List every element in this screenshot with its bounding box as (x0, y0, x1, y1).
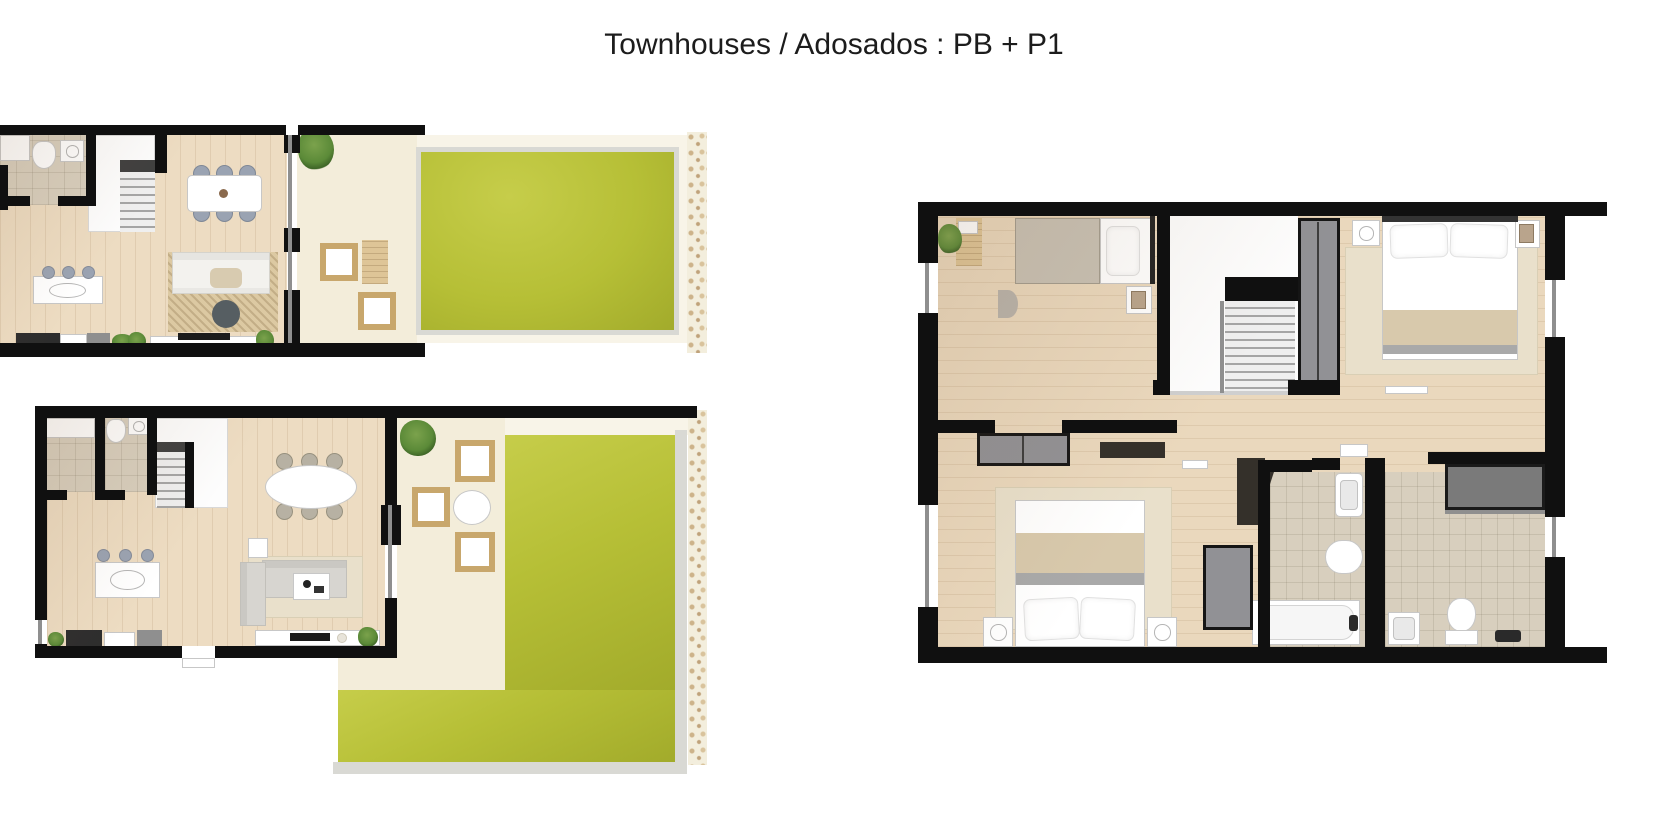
wall (35, 406, 697, 418)
shower-fixture (1495, 630, 1521, 642)
wall (1545, 337, 1565, 517)
toilet-tank (1445, 630, 1478, 645)
wall (86, 135, 96, 205)
floorplan-sheet: Townhouses / Adosados : PB + P1 (0, 0, 1668, 820)
wardrobe (1298, 218, 1340, 385)
pillow (1389, 223, 1448, 259)
table-decor (314, 586, 324, 593)
lawn (421, 152, 674, 330)
wall (0, 196, 30, 206)
window (1552, 517, 1556, 557)
kitchen-island (33, 276, 103, 304)
stair-edge (120, 160, 155, 172)
wall (1062, 420, 1177, 433)
wall (1428, 452, 1545, 464)
plant (938, 224, 962, 254)
wall (918, 202, 938, 263)
wall (1270, 460, 1312, 472)
outdoor-armchair (320, 243, 358, 281)
wall (1312, 458, 1340, 470)
plant (400, 420, 436, 456)
stair-treads (120, 172, 155, 232)
lawn (338, 690, 675, 762)
outdoor-armchair (412, 487, 450, 527)
kitchen-island (95, 562, 160, 598)
wall (0, 125, 286, 135)
wall (1225, 277, 1298, 301)
wall (938, 420, 995, 433)
bidet (1325, 540, 1363, 574)
books (958, 221, 978, 234)
outdoor-armchair (455, 532, 495, 572)
table-decor (219, 189, 228, 198)
wardrobe-door-split (1022, 436, 1024, 463)
wall (1365, 458, 1385, 647)
closet (0, 135, 30, 161)
pouf (212, 300, 240, 328)
toilet (32, 141, 56, 169)
decor-ball (337, 633, 347, 643)
stair-landing-edge (1170, 391, 1298, 395)
wall (918, 313, 938, 505)
window (925, 505, 929, 607)
coffee-table (293, 573, 330, 600)
page-title: Townhouses / Adosados : PB + P1 (0, 28, 1668, 62)
garden-paving (505, 416, 697, 435)
toilet (1447, 598, 1476, 632)
bed-blanket-stripe (1016, 573, 1144, 585)
nightstand (1352, 220, 1380, 246)
bathtub-inner (1258, 605, 1354, 640)
stair-treads (1225, 301, 1295, 393)
sink-basin (1393, 617, 1415, 640)
utility-floor (43, 438, 95, 492)
side-table (248, 538, 268, 558)
window (38, 620, 42, 644)
wall (385, 418, 397, 505)
lawn (505, 435, 675, 690)
sink (128, 416, 149, 435)
shower-tray (1445, 464, 1545, 510)
terrace (338, 658, 397, 690)
wall (95, 490, 125, 500)
magazine (1519, 224, 1534, 243)
bed-blanket (1016, 533, 1144, 573)
shelf (1100, 442, 1165, 458)
table-decor (303, 580, 311, 588)
nightstand (983, 617, 1013, 647)
door-leaf (1385, 386, 1428, 394)
pillow (1079, 597, 1136, 642)
wall (147, 418, 157, 495)
stair-edge (157, 442, 185, 452)
wall (0, 343, 425, 357)
shower-glass (1445, 510, 1545, 514)
cabinet (1203, 545, 1253, 630)
plant (48, 632, 64, 647)
bar-stool (119, 549, 132, 562)
wall (1288, 380, 1340, 395)
wall (95, 418, 105, 495)
tv (178, 333, 230, 340)
wall (1157, 216, 1170, 395)
wall (35, 646, 182, 658)
magazine (1131, 291, 1146, 309)
stair-rail (1220, 301, 1224, 393)
wall (298, 125, 425, 135)
throw-blanket (210, 268, 242, 288)
glass-wall (388, 505, 392, 598)
bar-stool (62, 266, 75, 279)
bed-blanket-stripe (1383, 345, 1517, 354)
window (1552, 280, 1556, 337)
wall (155, 135, 167, 173)
single-bed (1015, 218, 1100, 284)
wall (284, 135, 300, 153)
curb (333, 762, 685, 774)
bar-stool (42, 266, 55, 279)
wall (284, 228, 300, 252)
wall (58, 196, 96, 206)
wall (918, 607, 938, 663)
entry-door-threshold (182, 658, 215, 668)
pillow (1449, 223, 1508, 259)
gravel-border (687, 132, 707, 353)
headboard (1150, 216, 1155, 284)
bar-stool (82, 266, 95, 279)
bar-stool (141, 549, 154, 562)
wall (1545, 202, 1565, 280)
outdoor-armchair (455, 440, 495, 482)
wardrobe-door-split (1317, 222, 1319, 381)
closet (43, 418, 95, 438)
curb (675, 430, 687, 774)
gravel-border (688, 410, 707, 765)
outdoor-table (453, 490, 491, 525)
outdoor-armchair (358, 292, 396, 330)
wall (215, 646, 397, 658)
nightstand (1147, 617, 1177, 647)
wall (918, 647, 1607, 663)
kitchen-counter (137, 630, 162, 647)
door-leaf (1340, 444, 1368, 457)
bed-blanket (1383, 310, 1517, 345)
bath-faucet (1349, 615, 1358, 631)
kitchen-counter (66, 630, 102, 647)
sofa-chaise (240, 562, 266, 626)
wall (918, 202, 1607, 216)
wall (43, 490, 67, 500)
stair-treads (157, 452, 185, 508)
wall (1153, 380, 1170, 395)
dining-table (265, 465, 357, 509)
wall (185, 442, 194, 508)
glass-wall (288, 135, 292, 343)
wall (284, 290, 300, 343)
door-leaf (1182, 460, 1208, 469)
bar-stool (97, 549, 110, 562)
pillow (1106, 226, 1140, 276)
tv (290, 633, 330, 641)
wall (35, 418, 47, 620)
wall (1545, 557, 1565, 663)
headboard (1382, 216, 1518, 222)
wall (1258, 460, 1270, 647)
wall (385, 598, 397, 658)
toilet (106, 419, 126, 443)
kitchen-counter (104, 632, 135, 647)
sink-basin (1340, 480, 1358, 510)
desk-chair (998, 290, 1018, 318)
window (925, 263, 929, 313)
plant (358, 627, 378, 647)
sink (60, 140, 84, 162)
pillow (1023, 597, 1080, 642)
outdoor-bench (362, 240, 388, 284)
